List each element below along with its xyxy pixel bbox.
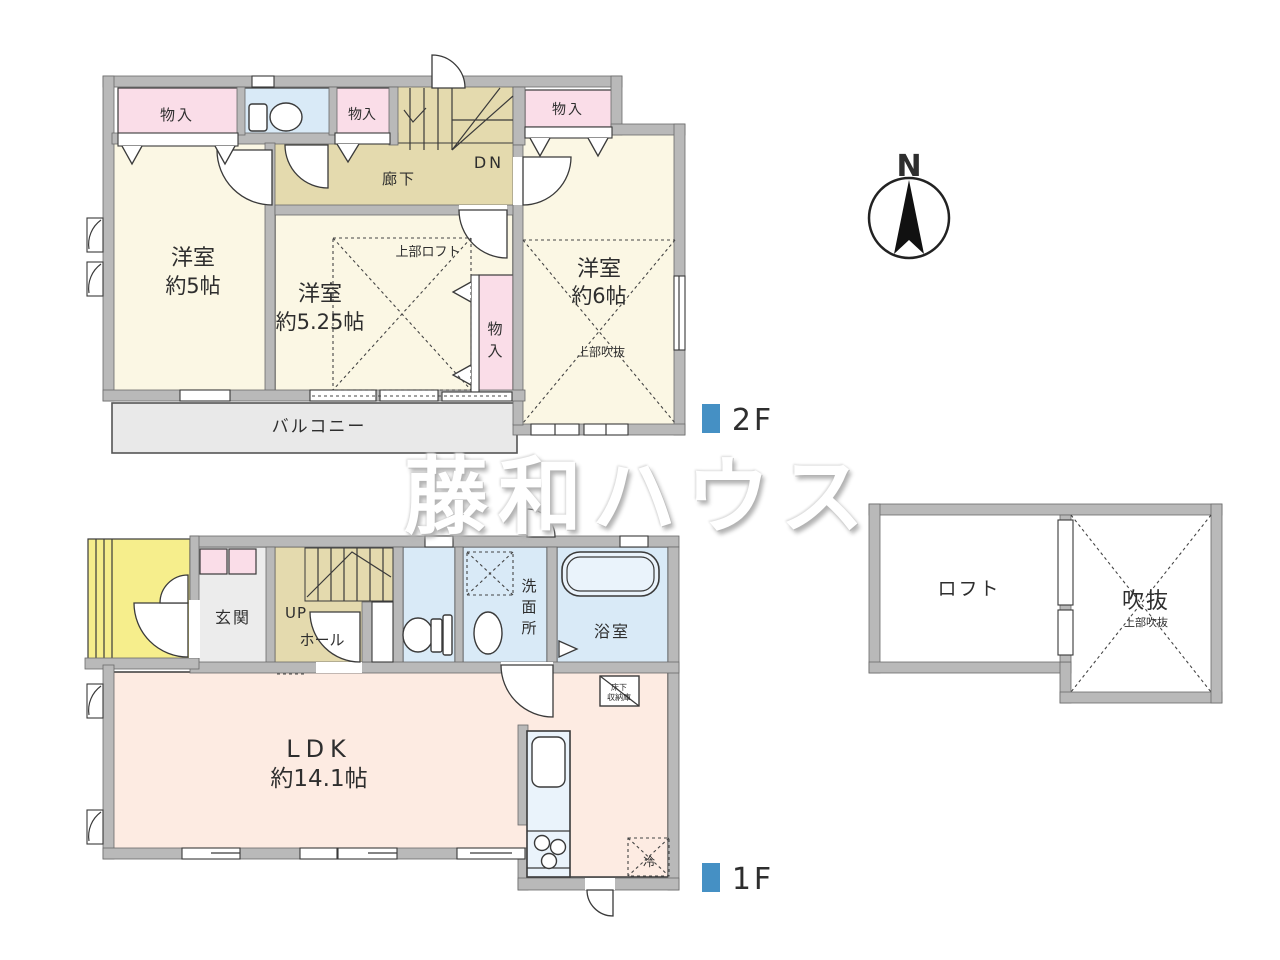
label-room-east-name: 洋室: [577, 257, 621, 282]
door-arc: [587, 890, 613, 916]
floor-markers: 2F 1F: [702, 403, 774, 897]
casement-window: [87, 218, 103, 252]
loft-plan: ロフト 吹抜 上部吹抜: [869, 504, 1222, 703]
door-arc: [527, 509, 555, 537]
north-arrow-icon: [894, 180, 924, 254]
f2-closet-front-vertical: [471, 275, 479, 392]
f2-closet-front-west: [118, 133, 238, 146]
label-closet: 物入: [552, 102, 584, 118]
casement-window: [87, 810, 103, 844]
casement-window: [87, 684, 103, 718]
f2-closet-front-right: [525, 127, 612, 138]
label-bathroom: 浴室: [594, 622, 630, 641]
label-balcony: バルコニー: [272, 417, 367, 437]
label-corridor: 廊下: [382, 170, 416, 188]
label-washroom-3: 所: [521, 619, 536, 637]
label-void-above: 上部吹抜: [1124, 615, 1168, 629]
floor2-marker-square: [702, 404, 720, 433]
loft-opening: [1058, 610, 1073, 655]
compass: N: [869, 149, 949, 258]
label-closet-vert-1: 物: [487, 320, 502, 338]
loft-labels: ロフト 吹抜 上部吹抜: [937, 578, 1170, 629]
stove-burner: [535, 836, 550, 851]
toilet-icon: [403, 615, 452, 655]
floorplan-canvas: 物入 物入 物入 物 入 廊下 DN 洋室 約5帖 洋室 約5.25帖 洋室 約…: [0, 0, 1280, 960]
casement-window: [87, 262, 103, 296]
floor1-marker-square: [702, 863, 720, 892]
f1-stairs: [305, 548, 393, 601]
loft-opening: [1058, 520, 1073, 605]
label-ldk-name: LDK: [286, 735, 352, 763]
toilet-icon: [249, 103, 302, 131]
label-north: N: [896, 149, 921, 184]
label-floor2-marker: 2F: [732, 403, 774, 438]
label-underfloor-2: 収納庫: [607, 692, 631, 702]
bathtub-icon: [562, 552, 659, 596]
label-void: 吹抜: [1122, 589, 1170, 614]
kitchen-counter: [527, 731, 570, 877]
label-loft: ロフト: [937, 578, 1000, 600]
label-void-above: 上部吹抜: [577, 345, 625, 359]
label-room-east-size: 約6帖: [571, 284, 626, 308]
label-entrance: 玄関: [215, 608, 251, 627]
label-ldk-size: 約14.1帖: [270, 766, 367, 792]
floorplan-page: 物入 物入 物入 物 入 廊下 DN 洋室 約5帖 洋室 約5.25帖 洋室 約…: [0, 0, 1280, 960]
f1-entrance-closet: [200, 549, 227, 574]
label-washroom-1: 洗: [521, 577, 536, 595]
label-room-center-name: 洋室: [298, 282, 342, 307]
label-underfloor-1: 床下: [611, 683, 627, 692]
label-closet-vert-2: 入: [487, 342, 502, 360]
f1-ldk: [112, 672, 668, 877]
floor1-plan: 玄関 UP ホール 洗 面 所 浴室 LDK 約14.1帖 床下 収納庫 冷: [85, 509, 679, 916]
label-closet: 物入: [160, 106, 194, 124]
window: [252, 76, 274, 87]
label-closet: 物入: [348, 107, 376, 123]
f1-entrance-closet: [229, 549, 256, 574]
label-floor1-marker: 1F: [732, 862, 774, 897]
window: [180, 390, 230, 401]
label-fridge: 冷: [643, 855, 655, 869]
f2-closet-front-mid: [335, 133, 390, 144]
stove-burner: [542, 854, 557, 869]
label-room-west-size: 約5帖: [165, 274, 220, 298]
label-hall: ホール: [299, 631, 344, 649]
label-stairs-up: UP: [285, 604, 307, 622]
label-stairs-dn: DN: [474, 153, 504, 172]
label-washroom-2: 面: [521, 598, 536, 616]
door-arc: [432, 55, 465, 88]
label-room-center-size: 約5.25帖: [276, 310, 365, 334]
label-loft-above: 上部ロフト: [395, 245, 460, 260]
understair-space: [372, 602, 393, 662]
sink-icon: [474, 612, 502, 654]
stove-burner: [551, 840, 566, 855]
label-room-west-name: 洋室: [171, 246, 215, 271]
floor2-plan: 物入 物入 物入 物 入 廊下 DN 洋室 約5帖 洋室 約5.25帖 洋室 約…: [87, 55, 685, 453]
window: [425, 536, 453, 547]
window: [620, 536, 648, 547]
window: [300, 848, 337, 859]
